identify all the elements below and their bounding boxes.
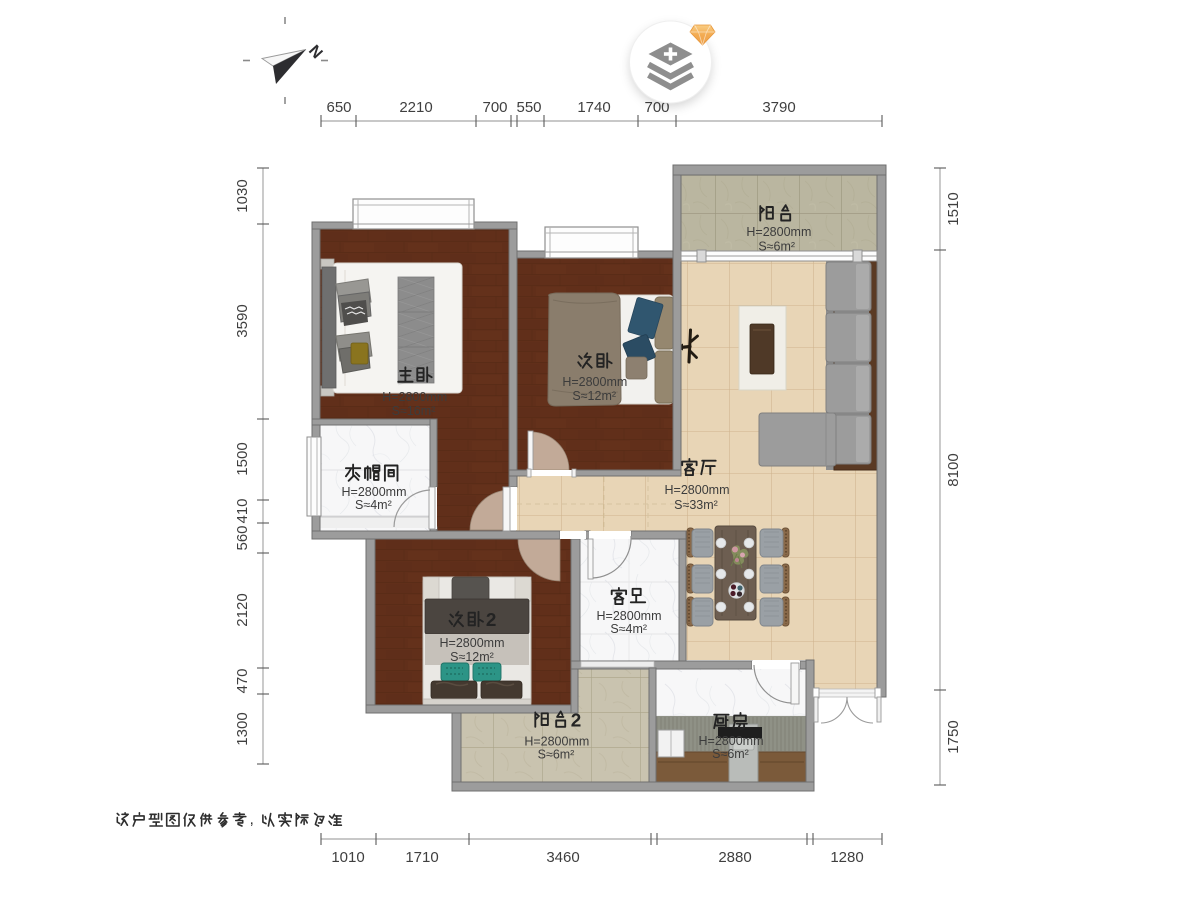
svg-text:S≈4m²: S≈4m² [355,498,392,512]
svg-text:H=2800mm: H=2800mm [562,375,627,389]
svg-text:1500: 1500 [234,442,251,475]
svg-text:1300: 1300 [234,712,251,745]
svg-text:1010: 1010 [331,849,364,866]
svg-text:3460: 3460 [546,849,579,866]
svg-text:1030: 1030 [234,179,251,212]
svg-text:S≈6m²: S≈6m² [538,747,575,761]
svg-text:2: 2 [486,610,497,631]
svg-text:,: , [250,811,254,828]
svg-text:650: 650 [326,99,351,116]
svg-text:3590: 3590 [234,304,251,337]
svg-text:S≈6m²: S≈6m² [712,747,749,761]
svg-text:2120: 2120 [234,593,251,626]
svg-text:3790: 3790 [762,99,795,116]
svg-text:1710: 1710 [405,849,438,866]
svg-text:S≈6m²: S≈6m² [758,240,795,254]
svg-text:S≈33m²: S≈33m² [674,498,718,512]
svg-text:560: 560 [234,525,251,550]
svg-text:470: 470 [234,668,251,693]
svg-text:H=2800mm: H=2800mm [382,390,447,404]
svg-text:H=2800mm: H=2800mm [342,485,407,499]
svg-text:H=2800mm: H=2800mm [665,483,730,497]
svg-text:H=2800mm: H=2800mm [699,734,764,748]
svg-text:8100: 8100 [945,453,962,486]
svg-text:1750: 1750 [945,720,962,753]
svg-text:S≈12m²: S≈12m² [450,650,494,664]
svg-text:700: 700 [482,99,507,116]
svg-text:2880: 2880 [718,849,751,866]
svg-text:410: 410 [234,498,251,523]
svg-text:H=2800mm: H=2800mm [746,225,811,239]
svg-text:1280: 1280 [830,849,863,866]
svg-text:S≈12m²: S≈12m² [572,389,616,403]
svg-text:1740: 1740 [577,99,610,116]
svg-text:S≈16m²: S≈16m² [392,404,436,418]
svg-text:2: 2 [571,710,582,731]
svg-text:1510: 1510 [945,192,962,225]
svg-text:S≈4m²: S≈4m² [610,622,647,636]
svg-text:H=2800mm: H=2800mm [440,636,505,650]
svg-text:H=2800mm: H=2800mm [597,609,662,623]
svg-text:550: 550 [516,99,541,116]
svg-text:2210: 2210 [399,99,432,116]
